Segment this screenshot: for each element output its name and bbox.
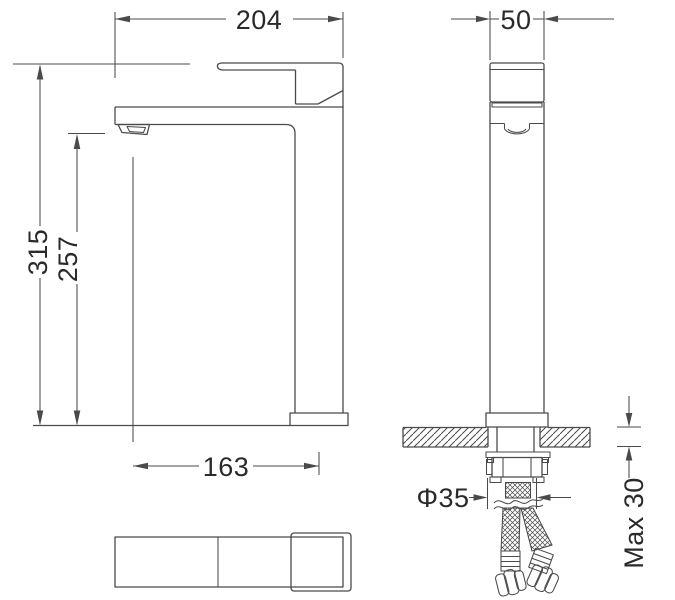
faucet-front-outline [486,63,548,427]
mounting-nut-facets [503,458,531,478]
column-front-edges [490,102,544,413]
dim-max30-label: Max 30 [619,477,649,569]
hose-left-collar [501,551,520,571]
mounting-washer [486,452,550,458]
plan-handle-outline [291,533,351,591]
left-nut-facet-b [503,569,520,596]
counter-hatch-right [540,428,590,448]
dim-max30-arrow-top [626,413,633,427]
dim-spout-reach: 163 [133,157,319,482]
counter-hatch-left [403,428,488,448]
dim-163-label: 163 [203,452,250,482]
dim-hole-diameter: Φ35 [416,478,571,513]
nut-foot-left [490,477,501,483]
handle-chamfer [318,91,343,105]
dim-max-deck-thickness: Max 30 [617,396,649,569]
base-plate-side [290,413,348,426]
technical-drawing: 204 315 257 163 [0,0,675,600]
dim-315-arrow-bottom [37,411,44,426]
spout-bottom-and-column-front [115,125,295,414]
hose-right-end-nut [525,562,561,596]
plan-body-outline [115,537,343,587]
dim-257-label: 257 [53,236,83,283]
aerator-front-insert [508,129,526,132]
dim-overall-height: 315 [13,64,190,426]
dim-body-width: 50 [451,5,614,60]
dim-max30-arrow-bottom [626,447,633,461]
plan-view [115,533,351,591]
supply-hoses [494,483,561,598]
mounting-nut [492,458,542,478]
dim-50-arrow-right [544,16,558,23]
base-plate-front [486,413,548,427]
hose-upper-section [506,483,531,499]
body-joint-band [492,103,542,107]
faucet-dimension-drawing: 204 315 257 163 [0,0,675,600]
dim-max30-ticks [617,427,641,447]
dim-163-arrow-right [304,463,319,470]
hose-left [501,508,520,551]
side-view: 204 315 257 163 [13,5,348,482]
dim-163-arrow-left [133,463,148,470]
dim-50-arrow-left [476,16,490,23]
dim-204-label: 204 [236,5,283,35]
dim-315-label: 315 [23,229,53,276]
collar-left-ribs [501,557,520,567]
left-nut-facet-c [513,570,527,592]
dim-spout-outlet-height: 257 [53,134,105,426]
dim-phi35-label: Φ35 [416,483,469,513]
nut-foot-right [533,477,544,483]
dim-204-arrow-right [328,16,343,23]
dim-257-arrow-top [74,134,81,149]
dim-overall-depth: 204 [115,5,343,78]
dim-204-arrow-left [115,16,130,23]
front-view: 50 [403,5,649,598]
handle-top-edge [222,63,343,67]
dim-50-label: 50 [500,5,531,35]
aerator-side-insert [127,127,146,133]
hose-right [521,508,552,551]
handle-front-face [490,63,544,102]
dim-315-arrow-top [37,65,44,80]
threaded-shank [497,427,534,452]
dim-phi35-arrow-right [537,494,551,501]
dim-257-arrow-bottom [74,411,81,426]
left-nut-facet-a [495,573,510,597]
handle-tip [217,63,223,70]
dim-phi35-arrow-left [474,494,488,501]
